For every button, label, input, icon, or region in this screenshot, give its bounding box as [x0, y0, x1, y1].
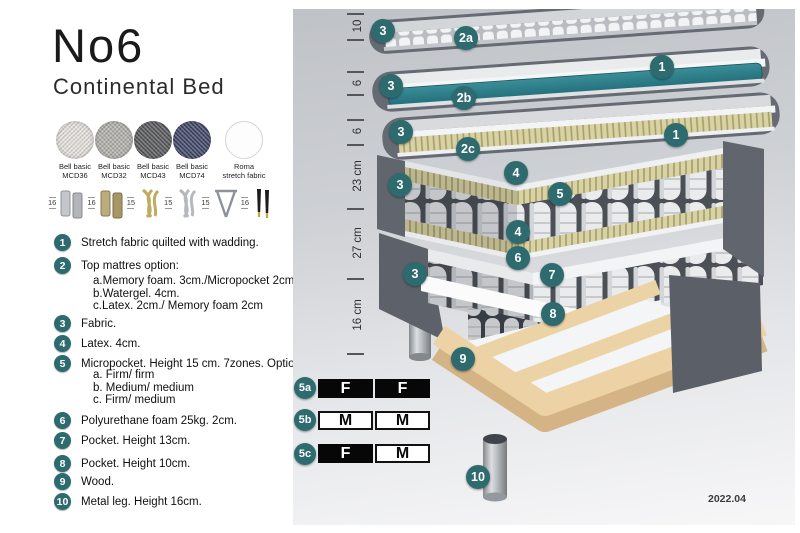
layer-badge-2a: 2a [454, 26, 478, 50]
legend-item-8: 8Pocket. Height 10cm. [54, 455, 190, 472]
option-badge-5c: 5c [294, 443, 316, 465]
leg-option: 15 [164, 186, 201, 220]
firmness-row-5b: M M [318, 411, 430, 430]
leg-height: 16 [87, 198, 95, 209]
layer-badge-9: 9 [451, 347, 475, 371]
leg-height: 15 [164, 198, 172, 209]
ruler-label: 27 cm [350, 213, 366, 273]
legend-item-10: 10Metal leg. Height 16cm. [54, 493, 202, 510]
legend-number-badge: 2 [54, 257, 71, 274]
fabric-name: Roma [234, 162, 254, 171]
diagram-panel: 10 6 6 23 cm 27 cm 16 cm 3 2a 1 3 2b 3 1… [293, 9, 795, 525]
leg-option: 15 [201, 186, 240, 220]
legend-subitem: b. Medium/ medium [93, 382, 194, 395]
legend-item-7: 7Pocket. Height 13cm. [54, 432, 190, 449]
legend-item-6: 6Polyurethane foam 25kg. 2cm. [54, 412, 237, 429]
fabric-code: MCD32 [101, 171, 126, 180]
firmness-cell: M [375, 444, 430, 463]
legend-text: Micropocket. Height 15 cm. 7zones. Optio… [81, 358, 304, 370]
fabric-circle [225, 121, 263, 159]
legend-subitem: b.Watergel. 4cm. [93, 288, 294, 301]
fabric-name: Bell basic [59, 162, 91, 171]
layer-badge-3: 3 [388, 173, 412, 197]
page-subtitle: Continental Bed [53, 74, 225, 100]
leg-height: 16 [241, 198, 249, 209]
legend-subitem: a. Firm/ firm [93, 369, 194, 382]
layer-badge-1: 1 [664, 123, 688, 147]
legend-number-badge: 6 [54, 412, 71, 429]
version-label: 2022.04 [708, 493, 768, 505]
legend-sublist: a.Memory foam. 3cm./Micropocket 2cm b.Wa… [93, 275, 294, 313]
ruler-label: 10 [350, 0, 366, 56]
topper-micropocket-layer [368, 9, 765, 55]
leg-option: 16 [48, 186, 87, 220]
info-pane: No6 Continental Bed Bell basicMCD36 Bell… [0, 0, 293, 533]
legend-item-9: 9Wood. [54, 473, 114, 490]
legend-number-badge: 8 [54, 455, 71, 472]
layer-badge-2c: 2c [456, 137, 480, 161]
layer-badge-3: 3 [379, 74, 403, 98]
layer-badge-1: 1 [650, 55, 674, 79]
legend-item-1: 1Stretch fabric quilted with wadding. [54, 234, 259, 251]
legend-number-badge: 10 [54, 493, 71, 510]
layer-badge-3: 3 [371, 19, 395, 43]
fabric-code: MCD36 [62, 171, 87, 180]
leg-height: 15 [127, 198, 135, 209]
legend-item-3: 3Fabric. [54, 315, 116, 332]
legend-text: Pocket. Height 10cm. [81, 458, 190, 470]
fabric-swatches: Bell basicMCD36 Bell basicMCD32 Bell bas… [0, 121, 293, 183]
legend-item-4: 4Latex. 4cm. [54, 335, 140, 352]
fabric-swatch: Bell basicMCD74 [167, 121, 217, 180]
legend-number-badge: 1 [54, 234, 71, 251]
legend-number-badge: 9 [54, 473, 71, 490]
twist-gold-leg-icon [136, 186, 164, 220]
firmness-cell: F [318, 379, 373, 398]
firmness-cell: M [318, 411, 373, 430]
fabric-code: stretch fabric [223, 171, 266, 180]
legend-item-2: 2Top mattres option: [54, 257, 179, 274]
layer-badge-4: 4 [504, 161, 528, 185]
taper-black-leg-icon [250, 186, 276, 220]
layer-badge-8: 8 [541, 302, 565, 326]
firmness-row-5c: F M [318, 444, 430, 463]
legend-number-badge: 3 [54, 315, 71, 332]
legend-text: Latex. 4cm. [81, 338, 140, 350]
layer-badge-2b: 2b [452, 86, 476, 110]
leg-option: 16 [87, 186, 126, 220]
legend-subitem: c. Firm/ medium [93, 394, 194, 407]
firmness-row-5a: F F [318, 379, 430, 398]
leg-options: 16 16 15 15 15 16 [48, 185, 258, 221]
fabric-swatch: Romastretch fabric [219, 121, 269, 180]
firmness-cell: F [375, 379, 430, 398]
option-badge-5b: 5b [294, 409, 316, 431]
cylinder-brass-leg-icon [97, 186, 127, 220]
legend-text: Wood. [81, 476, 114, 488]
layer-badge-10: 10 [466, 465, 490, 489]
legend-number-badge: 5 [54, 355, 71, 372]
firmness-cell: F [318, 444, 373, 463]
firmness-cell: M [375, 411, 430, 430]
legend-subitem: a.Memory foam. 3cm./Micropocket 2cm [93, 275, 294, 288]
fabric-circle [173, 121, 211, 159]
ruler-label: 16 cm [350, 285, 366, 345]
option-badge-5a: 5a [294, 377, 316, 399]
ruler-tick [347, 353, 364, 355]
legend-text: Top mattres option: [81, 260, 179, 272]
fabric-code: MCD43 [140, 171, 165, 180]
bed-infographic: No6 Continental Bed Bell basicMCD36 Bell… [0, 0, 800, 533]
fabric-code: MCD74 [179, 171, 204, 180]
fabric-name: Bell basic [137, 162, 169, 171]
ruler-tick [347, 278, 364, 280]
ruler-tick [347, 208, 364, 210]
leg-option: 16 [241, 186, 276, 220]
leg-height: 16 [48, 198, 56, 209]
leg-height: 15 [201, 198, 209, 209]
ruler-label: 23 cm [350, 146, 366, 206]
legend-number-badge: 4 [54, 335, 71, 352]
fabric-name: Bell basic [176, 162, 208, 171]
cylinder-silver-leg-icon [57, 186, 87, 220]
legend-text: Metal leg. Height 16cm. [81, 496, 202, 508]
legend-text: Pocket. Height 13cm. [81, 435, 190, 447]
layer-badge-3: 3 [389, 120, 413, 144]
legend-text: Stretch fabric quilted with wadding. [81, 237, 259, 249]
layer-badge-7: 7 [540, 263, 564, 287]
hairpin-leg-icon [211, 186, 241, 220]
legend-number-badge: 7 [54, 432, 71, 449]
legend-sublist: a. Firm/ firm b. Medium/ medium c. Firm/… [93, 369, 194, 407]
box-fabric-corner [669, 275, 762, 393]
layer-badge-4: 4 [506, 220, 530, 244]
legend-text: Fabric. [81, 318, 116, 330]
twist-silver-leg-icon [173, 186, 201, 220]
legend-subitem: c.Latex. 2cm./ Memory foam 2cm [93, 300, 294, 313]
leg-option: 15 [127, 186, 164, 220]
legend-text: Polyurethane foam 25kg. 2cm. [81, 415, 237, 427]
fabric-name: Bell basic [98, 162, 130, 171]
layer-badge-5: 5 [548, 182, 572, 206]
page-title: No6 [52, 18, 144, 73]
layer-badge-6: 6 [506, 246, 530, 270]
layer-badge-3: 3 [403, 262, 427, 286]
